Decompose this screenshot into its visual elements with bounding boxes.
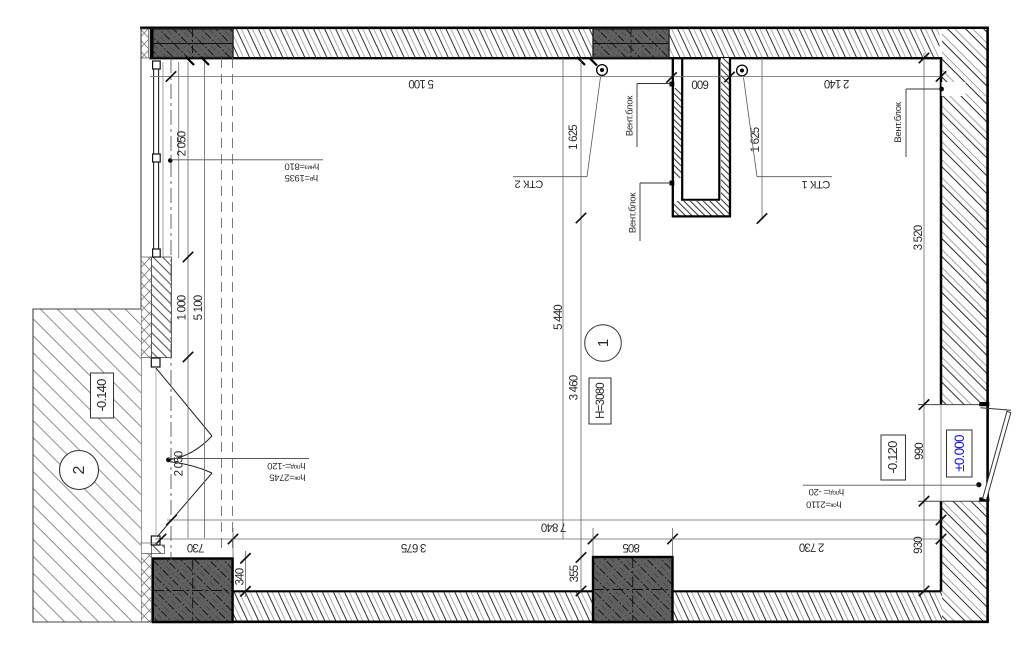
svg-text:-0.140: -0.140 <box>94 379 109 412</box>
svg-text:2 140: 2 140 <box>824 77 849 89</box>
svg-text:±0.000: ±0.000 <box>952 435 967 472</box>
svg-text:H=3080: H=3080 <box>595 383 607 419</box>
svg-text:1 625: 1 625 <box>568 125 580 150</box>
svg-text:7 840: 7 840 <box>541 520 566 532</box>
svg-text:3 675: 3 675 <box>401 541 426 553</box>
svg-text:3 460: 3 460 <box>569 375 581 400</box>
svg-text:2 050: 2 050 <box>174 451 186 476</box>
svg-text:3 520: 3 520 <box>913 225 925 250</box>
svg-text:СТК 1: СТК 1 <box>802 178 831 190</box>
svg-text:5 100: 5 100 <box>193 295 205 320</box>
svg-text:2 050: 2 050 <box>177 131 189 156</box>
svg-text:990: 990 <box>914 443 926 460</box>
svg-text:5 100: 5 100 <box>409 77 434 89</box>
svg-text:805: 805 <box>623 541 640 553</box>
svg-text:Вент.блок: Вент.блок <box>893 101 904 142</box>
svg-text:СТК 2: СТК 2 <box>515 177 544 189</box>
svg-text:-0.120: -0.120 <box>885 441 900 474</box>
svg-text:355: 355 <box>569 565 581 582</box>
svg-text:730: 730 <box>187 541 204 553</box>
svg-text:2: 2 <box>71 465 88 474</box>
svg-text:Вент.блок: Вент.блок <box>628 192 639 233</box>
svg-text:Вент.блок: Вент.блок <box>625 95 636 136</box>
svg-text:340: 340 <box>235 568 247 585</box>
svg-text:1 000: 1 000 <box>177 295 189 320</box>
svg-text:600: 600 <box>692 77 709 89</box>
svg-text:2 730: 2 730 <box>799 540 824 552</box>
svg-text:5 440: 5 440 <box>553 305 565 330</box>
svg-text:1: 1 <box>595 339 612 347</box>
